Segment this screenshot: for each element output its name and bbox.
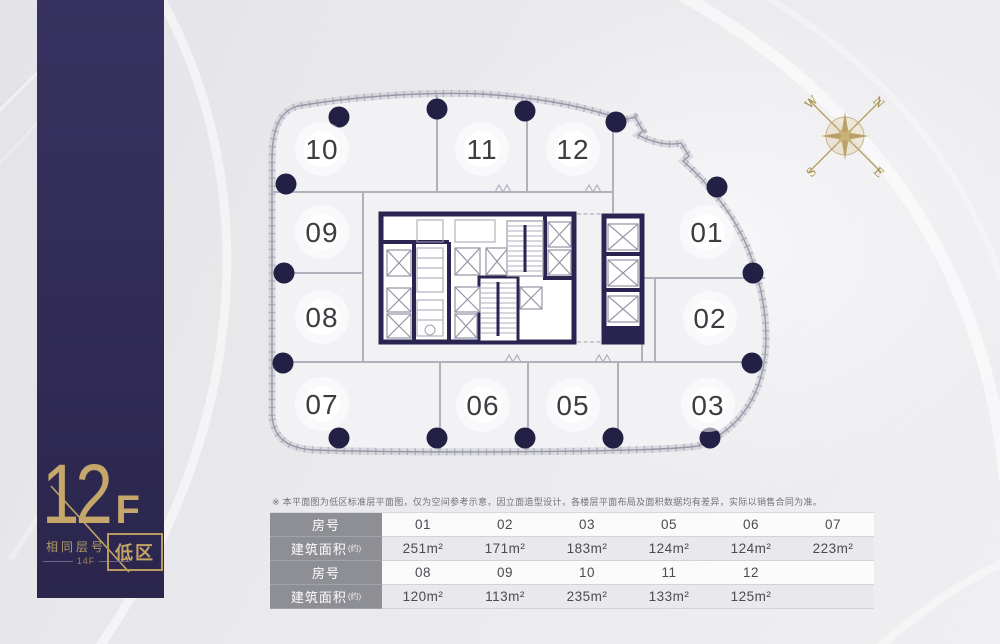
svg-text:02: 02	[693, 303, 726, 334]
table-cell: 125m²	[710, 585, 792, 608]
svg-text:08: 08	[305, 302, 338, 333]
table-cell: 171m²	[464, 537, 546, 560]
table-cell	[792, 585, 874, 608]
divider-line	[43, 561, 73, 562]
table-row-area-1: 建筑面积(约) 251m² 171m² 183m² 124m² 124m² 22…	[270, 537, 874, 561]
unit-label-08: 08	[295, 290, 349, 344]
same-floor-number: 14F	[77, 556, 96, 566]
table-row-unit-1: 房号 01 02 03 05 06 07	[270, 512, 874, 537]
table-row-area-2: 建筑面积(约) 120m² 113m² 235m² 133m² 125m²	[270, 585, 874, 609]
svg-text:12: 12	[556, 134, 589, 165]
table-cell	[792, 561, 874, 584]
svg-text:07: 07	[305, 389, 338, 420]
row-header-unit: 房号	[270, 513, 382, 537]
floor-number-digits: 12	[42, 452, 109, 536]
row-header-unit: 房号	[270, 561, 382, 585]
core	[381, 214, 642, 342]
table-cell: 07	[792, 513, 874, 536]
unit-label-11: 11	[455, 122, 509, 176]
table-cell: 05	[628, 513, 710, 536]
table-cell: 113m²	[464, 585, 546, 608]
row-header-area: 建筑面积(约)	[270, 585, 382, 609]
table-cell: 124m²	[710, 537, 792, 560]
floor-number: 12F	[42, 452, 140, 536]
compass-s: S	[803, 164, 819, 180]
unit-label-10: 10	[295, 122, 349, 176]
floor-suffix: F	[115, 488, 139, 533]
unit-label-06: 06	[456, 378, 510, 432]
svg-text:03: 03	[691, 390, 724, 421]
disclaimer-text: ※ 本平面图为低区标准层平面图，仅为空间参考示意，因立面造型设计，各楼层平面布局…	[272, 495, 892, 508]
table-cell: 124m²	[628, 537, 710, 560]
table-cell: 06	[710, 513, 792, 536]
unit-label-01: 01	[680, 205, 734, 259]
table-cell: 09	[464, 561, 546, 584]
unit-label-02: 02	[683, 291, 737, 345]
table-row-unit-2: 房号 08 09 10 11 12	[270, 561, 874, 585]
unit-label-09: 09	[295, 205, 349, 259]
svg-text:09: 09	[305, 217, 338, 248]
svg-text:10: 10	[305, 134, 338, 165]
svg-text:11: 11	[466, 134, 497, 165]
table-cell: 10	[546, 561, 628, 584]
table-cell: 11	[628, 561, 710, 584]
svg-text:06: 06	[466, 390, 499, 421]
table-cell: 08	[382, 561, 464, 584]
table-cell: 12	[710, 561, 792, 584]
compass-icon: W N S E	[802, 93, 887, 181]
table-cell: 120m²	[382, 585, 464, 608]
area-table: 房号 01 02 03 05 06 07 建筑面积(约) 251m² 171m²…	[270, 512, 874, 609]
table-cell: 02	[464, 513, 546, 536]
unit-label-12: 12	[546, 122, 600, 176]
unit-label-03: 03	[681, 378, 735, 432]
row-header-area: 建筑面积(约)	[270, 537, 382, 561]
unit-label-07: 07	[295, 377, 349, 431]
floor-banner: 12F 相同层号 14F 低区	[37, 0, 164, 598]
table-cell: 183m²	[546, 537, 628, 560]
svg-text:01: 01	[690, 217, 723, 248]
zone-badge: 低区	[107, 533, 163, 571]
table-cell: 03	[546, 513, 628, 536]
table-cell: 133m²	[628, 585, 710, 608]
table-cell: 235m²	[546, 585, 628, 608]
svg-text:05: 05	[556, 390, 589, 421]
compass-e: E	[871, 164, 887, 180]
unit-label-05: 05	[546, 378, 600, 432]
table-cell: 223m²	[792, 537, 874, 560]
page: 10 11 12 09 01 08 02 07 06 05 03 W N S E	[0, 0, 1000, 644]
table-cell: 251m²	[382, 537, 464, 560]
same-floor-label: 相同层号	[46, 538, 106, 555]
table-cell: 01	[382, 513, 464, 536]
